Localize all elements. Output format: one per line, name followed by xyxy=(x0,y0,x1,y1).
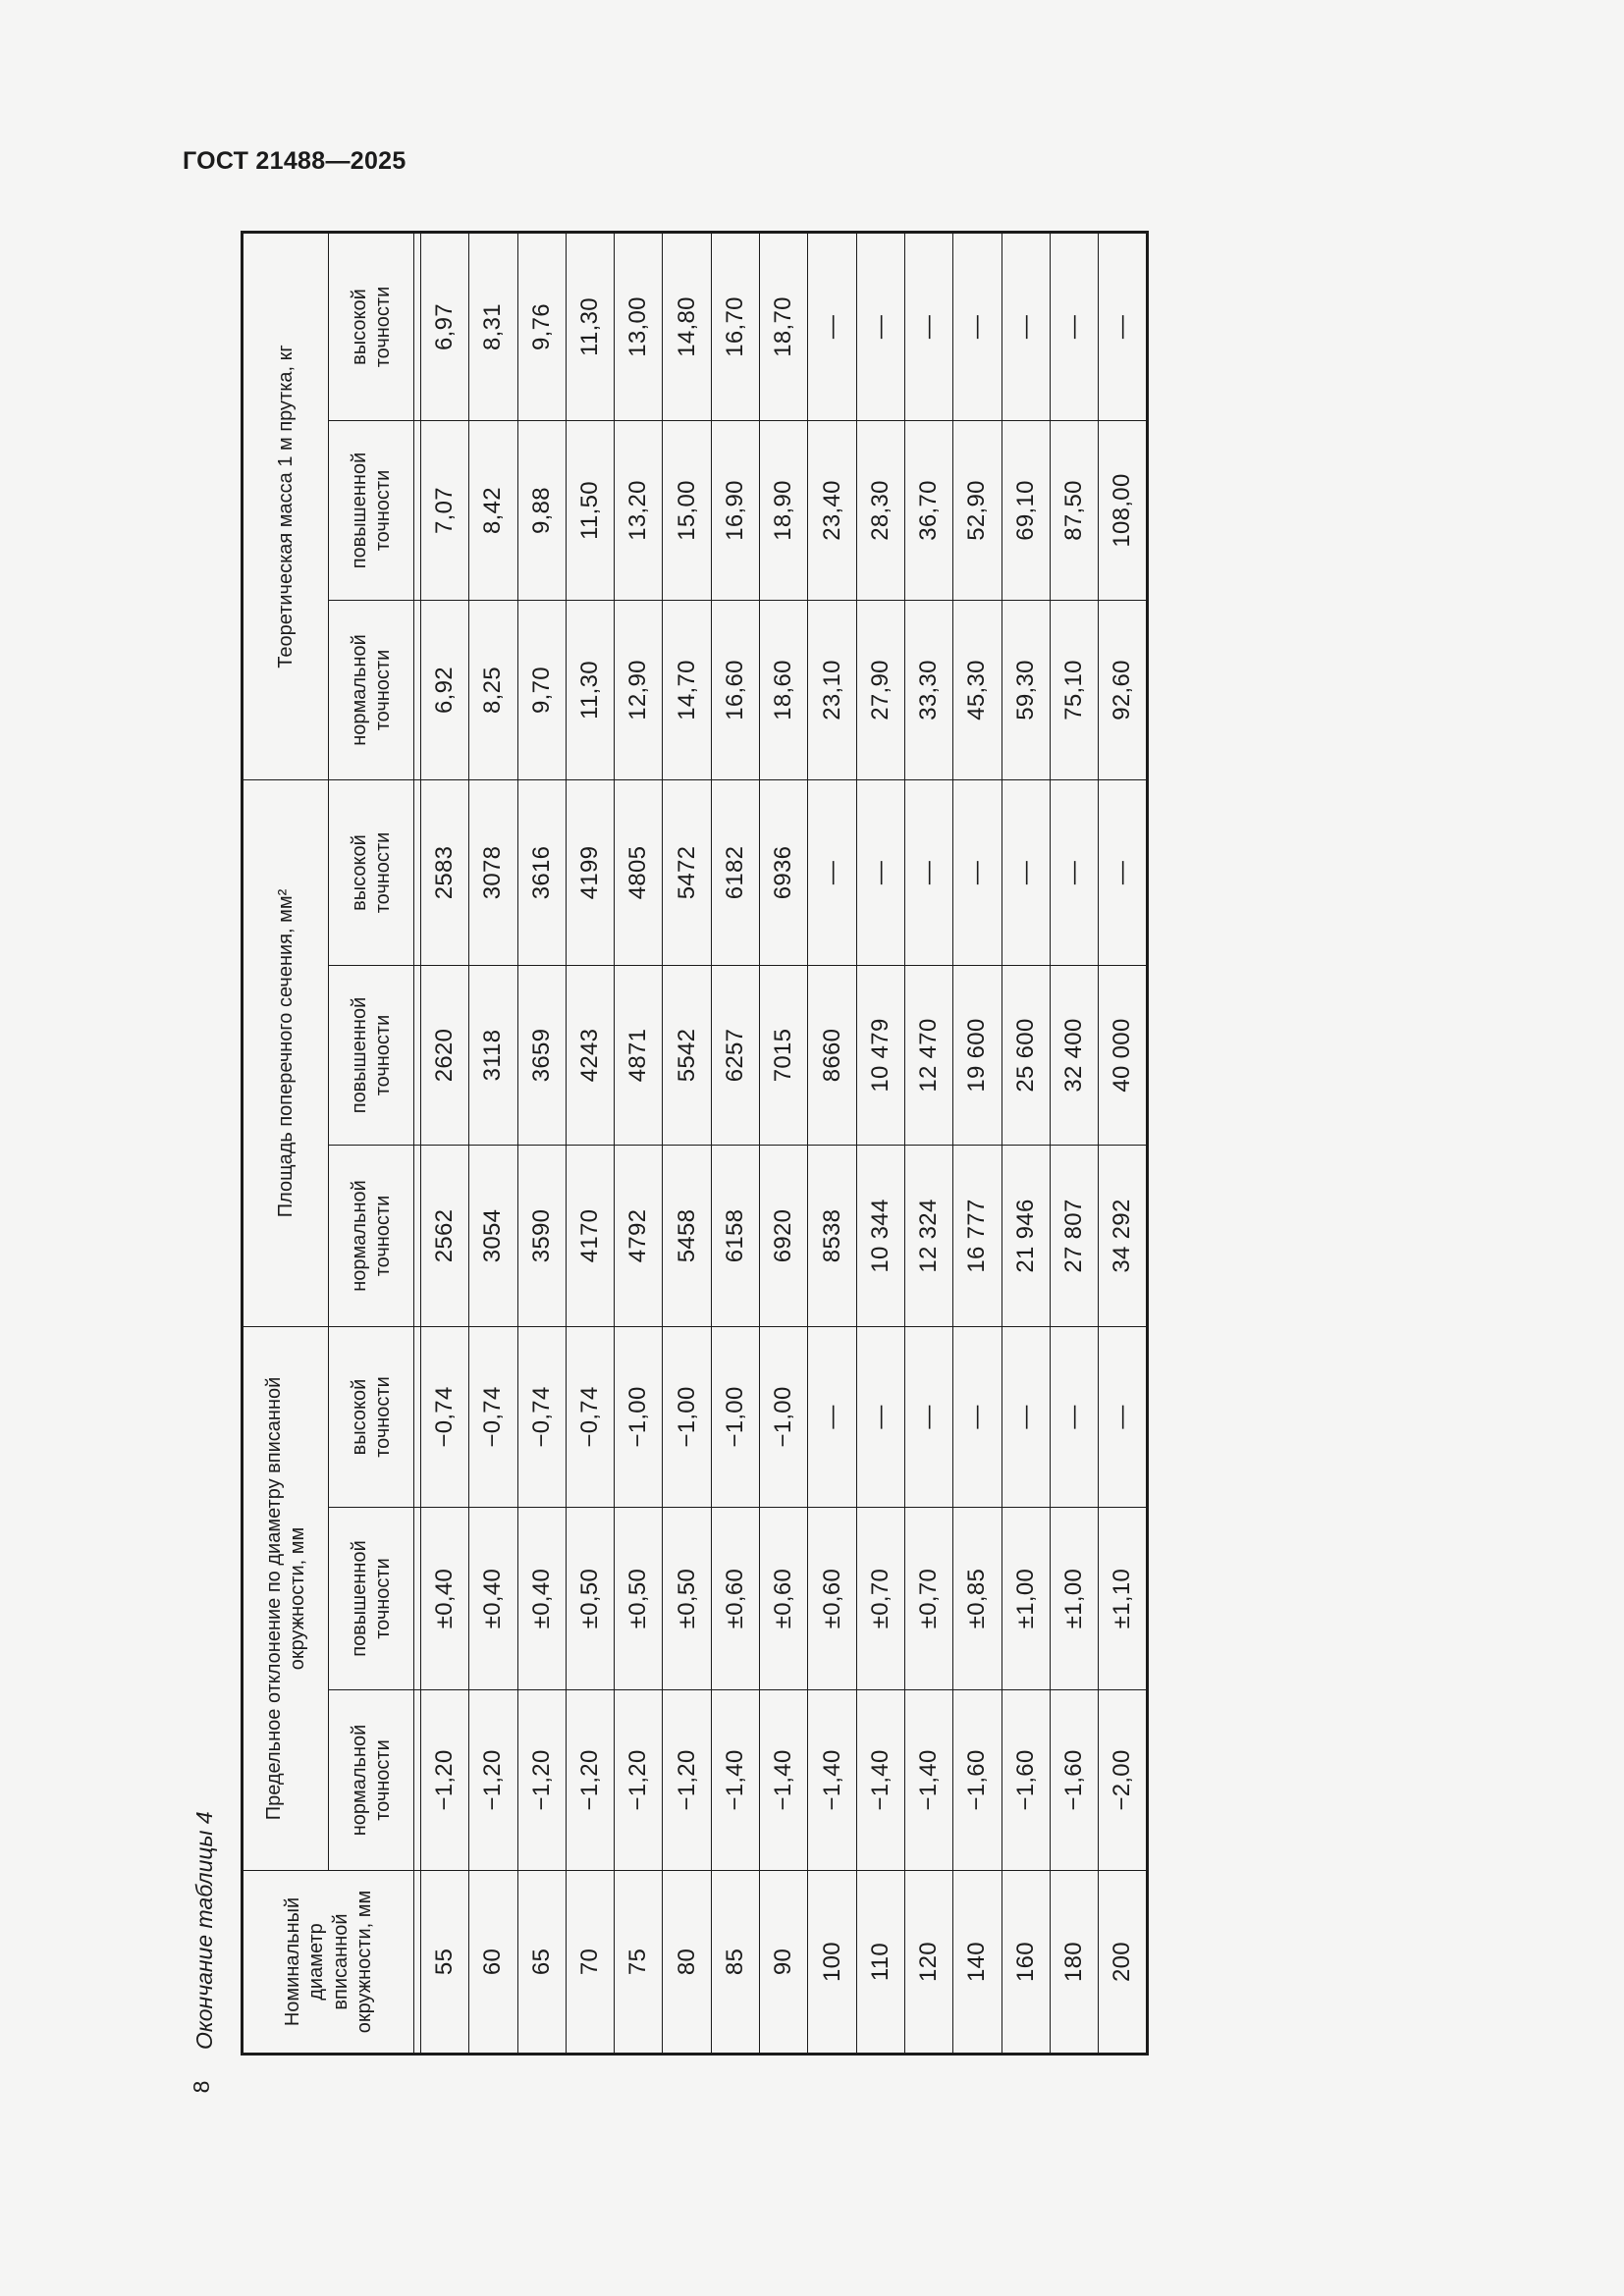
table-cell: 6,92 xyxy=(421,600,469,779)
table-cell: 52,90 xyxy=(953,420,1001,600)
table-cell: 4871 xyxy=(615,965,663,1145)
precision-subheader: повышенной точности xyxy=(329,1507,413,1689)
header-body-double-rule xyxy=(413,1326,421,1507)
table-cell: 40 000 xyxy=(1099,965,1146,1145)
table-cell: 16,60 xyxy=(712,600,760,779)
table-cell: 25 600 xyxy=(1002,965,1051,1145)
table-cell: −1,20 xyxy=(421,1689,469,1870)
table-cell: −1,40 xyxy=(857,1689,905,1870)
table-cell: −1,00 xyxy=(615,1326,663,1507)
table-cell: −1,00 xyxy=(663,1326,711,1507)
table-cell: 33,30 xyxy=(905,600,953,779)
table-cell: −1,20 xyxy=(615,1689,663,1870)
table-cell: ±0,40 xyxy=(518,1507,567,1689)
table-cell: — xyxy=(953,779,1001,965)
header-body-double-rule xyxy=(413,1145,421,1326)
table-cell: 6182 xyxy=(712,779,760,965)
header-body-double-rule xyxy=(413,779,421,965)
table-cell: 16,90 xyxy=(712,420,760,600)
table-cell: — xyxy=(808,1326,856,1507)
table-cell: 34 292 xyxy=(1099,1145,1146,1326)
table-cell: 6,97 xyxy=(421,234,469,420)
precision-subheader: нормальной точности xyxy=(329,1145,413,1326)
table-cell: 8,25 xyxy=(469,600,517,779)
table-cell: 16 777 xyxy=(953,1145,1001,1326)
table-cell: 27,90 xyxy=(857,600,905,779)
table-cell: 27 807 xyxy=(1051,1145,1099,1326)
group-header-theoretical-mass: Теоретическая масса 1 м прутка, кг xyxy=(244,234,329,779)
table-cell: −1,40 xyxy=(760,1689,808,1870)
table-cell: ±1,00 xyxy=(1002,1507,1051,1689)
table-cell: — xyxy=(1002,779,1051,965)
table-cell: — xyxy=(1051,1326,1099,1507)
table-cell: 32 400 xyxy=(1051,965,1099,1145)
table-cell: 12,90 xyxy=(615,600,663,779)
table-cell: 15,00 xyxy=(663,420,711,600)
table-cell: −1,60 xyxy=(1002,1689,1051,1870)
table-cell: 7015 xyxy=(760,965,808,1145)
table-cell: ±0,50 xyxy=(663,1507,711,1689)
table-cell: ±0,50 xyxy=(567,1507,615,1689)
table-cell: 21 946 xyxy=(1002,1145,1051,1326)
precision-subheader: высокой точности xyxy=(329,1326,413,1507)
table-cell: 6920 xyxy=(760,1145,808,1326)
table-cell: −1,20 xyxy=(663,1689,711,1870)
precision-subheader: высокой точности xyxy=(329,779,413,965)
table-cell: 28,30 xyxy=(857,420,905,600)
table-cell: 18,60 xyxy=(760,600,808,779)
table-cell: 12 470 xyxy=(905,965,953,1145)
table-cell: −1,60 xyxy=(953,1689,1001,1870)
table-cell: 5458 xyxy=(663,1145,711,1326)
header-body-double-rule xyxy=(413,1507,421,1689)
table-cell: 87,50 xyxy=(1051,420,1099,600)
table-cell: ±1,10 xyxy=(1099,1507,1146,1689)
table-cell: 18,70 xyxy=(760,234,808,420)
table-cell: 45,30 xyxy=(953,600,1001,779)
table-cell: 2562 xyxy=(421,1145,469,1326)
diameter-cell: 60 xyxy=(469,1870,517,2053)
table-cell: −0,74 xyxy=(518,1326,567,1507)
table-cell: 11,30 xyxy=(567,234,615,420)
table-cell: ±0,60 xyxy=(760,1507,808,1689)
table-cell: 10 344 xyxy=(857,1145,905,1326)
header-body-double-rule xyxy=(413,1870,421,2053)
table-cell: 36,70 xyxy=(905,420,953,600)
table-cell: −1,20 xyxy=(518,1689,567,1870)
table-cell: 14,70 xyxy=(663,600,711,779)
table-cell: −1,40 xyxy=(905,1689,953,1870)
table-cell: 18,90 xyxy=(760,420,808,600)
table-cell: 5472 xyxy=(663,779,711,965)
table-cell: 13,00 xyxy=(615,234,663,420)
table-cell: 4199 xyxy=(567,779,615,965)
table-cell: — xyxy=(1099,234,1146,420)
table-cell: ±0,40 xyxy=(421,1507,469,1689)
table-cell: 5542 xyxy=(663,965,711,1145)
table-cell: 3616 xyxy=(518,779,567,965)
table-cell: — xyxy=(905,1326,953,1507)
table-cell: 3590 xyxy=(518,1145,567,1326)
table-cell: 92,60 xyxy=(1099,600,1146,779)
precision-subheader: повышенной точности xyxy=(329,420,413,600)
diameter-cell: 200 xyxy=(1099,1870,1146,2053)
table-cell: — xyxy=(808,234,856,420)
diameter-cell: 140 xyxy=(953,1870,1001,2053)
table-cell: 23,10 xyxy=(808,600,856,779)
table-cell: — xyxy=(857,234,905,420)
table-cell: 9,70 xyxy=(518,600,567,779)
table-cell: −1,60 xyxy=(1051,1689,1099,1870)
table-caption: Окончание таблицы 4 xyxy=(192,1789,216,2050)
table-cell: 4792 xyxy=(615,1145,663,1326)
table-cell: — xyxy=(808,779,856,965)
table-cell: 59,30 xyxy=(1002,600,1051,779)
table-grid: Номинальный диаметр вписанной окружности… xyxy=(241,231,1149,2056)
precision-subheader: повышенной точности xyxy=(329,965,413,1145)
table-cell: ±1,00 xyxy=(1051,1507,1099,1689)
table-cell: 19 600 xyxy=(953,965,1001,1145)
table-cell: −0,74 xyxy=(567,1326,615,1507)
table-cell: 6257 xyxy=(712,965,760,1145)
table-cell: ±0,85 xyxy=(953,1507,1001,1689)
diameter-cell: 80 xyxy=(663,1870,711,2053)
table-cell: −0,74 xyxy=(469,1326,517,1507)
table-cell: — xyxy=(905,779,953,965)
table-cell: — xyxy=(953,1326,1001,1507)
table-cell: −2,00 xyxy=(1099,1689,1146,1870)
table-cell: 3078 xyxy=(469,779,517,965)
table-cell: — xyxy=(857,779,905,965)
table-cell: 2583 xyxy=(421,779,469,965)
table-cell: 11,30 xyxy=(567,600,615,779)
table-cell: 75,10 xyxy=(1051,600,1099,779)
table-cell: — xyxy=(1099,1326,1146,1507)
table-cell: 108,00 xyxy=(1099,420,1146,600)
table-cell: 8660 xyxy=(808,965,856,1145)
table-cell: 10 479 xyxy=(857,965,905,1145)
diameter-cell: 100 xyxy=(808,1870,856,2053)
header-body-double-rule xyxy=(413,600,421,779)
table-cell: 23,40 xyxy=(808,420,856,600)
table-cell: 6158 xyxy=(712,1145,760,1326)
table-cell: — xyxy=(1051,234,1099,420)
standard-code-header: ГОСТ 21488—2025 xyxy=(183,147,406,176)
table-cell: 3118 xyxy=(469,965,517,1145)
precision-subheader: нормальной точности xyxy=(329,1689,413,1870)
table-cell: — xyxy=(905,234,953,420)
diameter-cell: 110 xyxy=(857,1870,905,2053)
table-cell: −1,00 xyxy=(712,1326,760,1507)
diameter-cell: 180 xyxy=(1051,1870,1099,2053)
table-cell: — xyxy=(857,1326,905,1507)
table-cell: 16,70 xyxy=(712,234,760,420)
table-cell: — xyxy=(1099,779,1146,965)
diameter-cell: 160 xyxy=(1002,1870,1051,2053)
table-cell: 6936 xyxy=(760,779,808,965)
column-header-nominal-diameter: Номинальный диаметр вписанной окружности… xyxy=(244,1870,413,2053)
header-body-double-rule xyxy=(413,234,421,420)
table-cell: 8,42 xyxy=(469,420,517,600)
table-cell: 8,31 xyxy=(469,234,517,420)
table-cell: — xyxy=(1002,1326,1051,1507)
table-cell: ±0,70 xyxy=(857,1507,905,1689)
table-cell: −1,20 xyxy=(469,1689,517,1870)
diameter-cell: 65 xyxy=(518,1870,567,2053)
table-cell: — xyxy=(1051,779,1099,965)
table-cell: −1,20 xyxy=(567,1689,615,1870)
table-cell: 4243 xyxy=(567,965,615,1145)
table-cell: −0,74 xyxy=(421,1326,469,1507)
table-cell: 3659 xyxy=(518,965,567,1145)
diameter-cell: 75 xyxy=(615,1870,663,2053)
table-cell: ±0,70 xyxy=(905,1507,953,1689)
precision-subheader: нормальной точности xyxy=(329,600,413,779)
table-cell: 4805 xyxy=(615,779,663,965)
group-header-cross-section-area: Площадь поперечного сечения, мм² xyxy=(244,779,329,1326)
page-number: 8 xyxy=(189,2073,214,2101)
table-cell: 2620 xyxy=(421,965,469,1145)
table-cell: 12 324 xyxy=(905,1145,953,1326)
table-cell: 9,88 xyxy=(518,420,567,600)
group-header-limit-deviation: Предельное отклонение по диаметру вписан… xyxy=(244,1326,329,1870)
table-cell: 14,80 xyxy=(663,234,711,420)
diameter-cell: 90 xyxy=(760,1870,808,2053)
table-cell: — xyxy=(953,234,1001,420)
table-cell: 7,07 xyxy=(421,420,469,600)
precision-subheader: высокой точности xyxy=(329,234,413,420)
table-cell: ±0,50 xyxy=(615,1507,663,1689)
header-body-double-rule xyxy=(413,1689,421,1870)
table-cell: −1,00 xyxy=(760,1326,808,1507)
document-page: { "document": { "standard_code": "ГОСТ 2… xyxy=(0,0,1624,2296)
diameter-cell: 120 xyxy=(905,1870,953,2053)
page-number-text: 8 xyxy=(189,2073,214,2101)
table-cell: 13,20 xyxy=(615,420,663,600)
diameter-cell: 55 xyxy=(421,1870,469,2053)
diameter-cell: 85 xyxy=(712,1870,760,2053)
table-cell: −1,40 xyxy=(712,1689,760,1870)
table-cell: 4170 xyxy=(567,1145,615,1326)
table-cell: ±0,40 xyxy=(469,1507,517,1689)
table-cell: 11,50 xyxy=(567,420,615,600)
table-cell: 3054 xyxy=(469,1145,517,1326)
header-body-double-rule xyxy=(413,420,421,600)
specification-table: Номинальный диаметр вписанной окружности… xyxy=(241,231,1149,2056)
table-cell: 69,10 xyxy=(1002,420,1051,600)
table-cell: ±0,60 xyxy=(712,1507,760,1689)
table-caption-text: Окончание таблицы 4 xyxy=(192,1789,216,2050)
table-cell: −1,40 xyxy=(808,1689,856,1870)
diameter-cell: 70 xyxy=(567,1870,615,2053)
table-cell: ±0,60 xyxy=(808,1507,856,1689)
table-cell: 9,76 xyxy=(518,234,567,420)
table-cell: — xyxy=(1002,234,1051,420)
table-cell: 8538 xyxy=(808,1145,856,1326)
header-body-double-rule xyxy=(413,965,421,1145)
